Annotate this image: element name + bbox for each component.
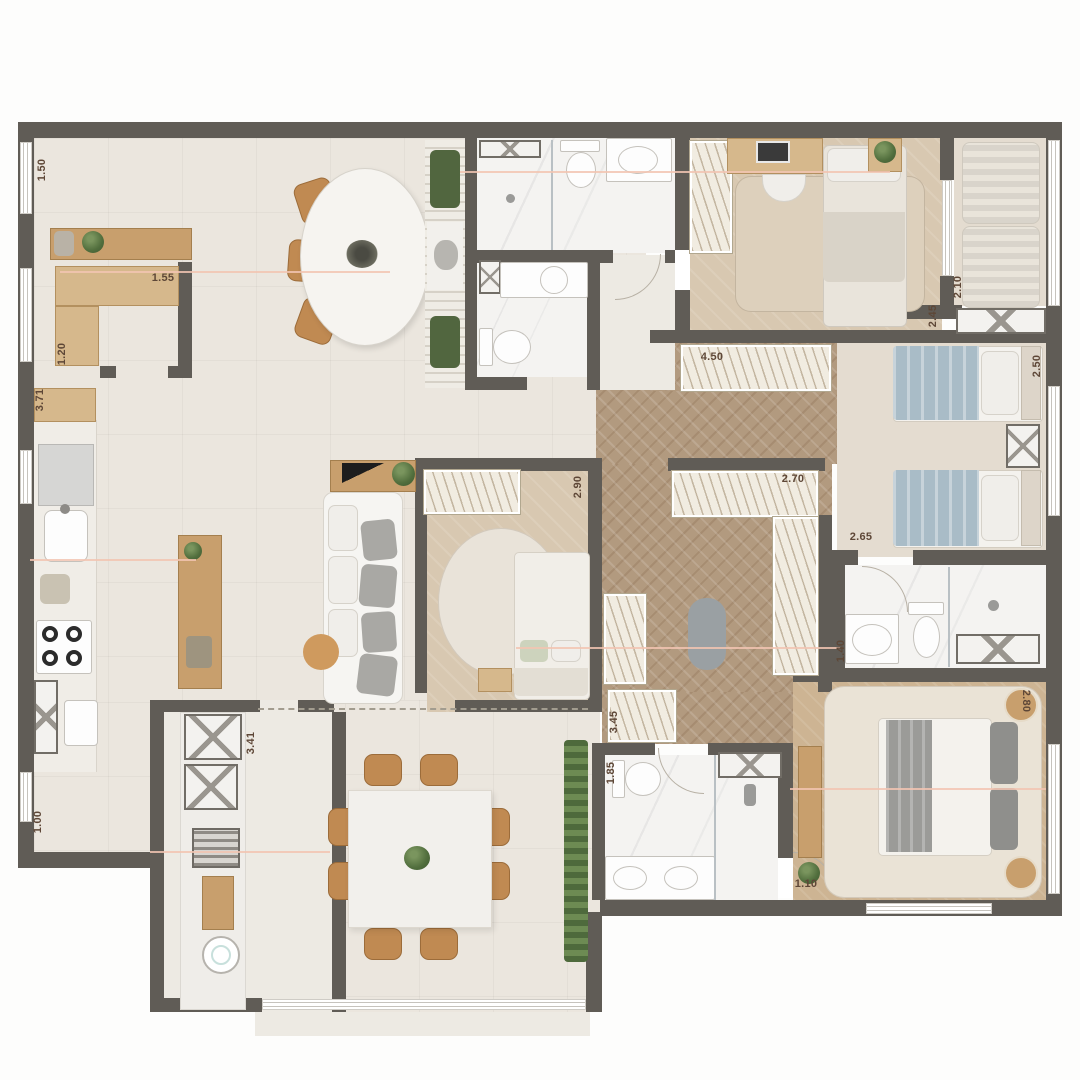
wardrobe: [604, 594, 646, 684]
sofa-pillow: [360, 518, 398, 561]
dimension-label: 1.20: [56, 343, 68, 366]
terrace-step: [255, 1012, 590, 1036]
window: [20, 268, 32, 362]
bed-headboard-pillows: [990, 722, 1018, 784]
laptop: [756, 141, 790, 163]
wall-office-right: [178, 262, 192, 366]
sofa-cushion: [328, 556, 358, 604]
terrace-chair: [420, 754, 458, 786]
wall-bedroom2-bath: [832, 550, 858, 565]
burner: [66, 626, 82, 642]
wall-bedroom3-right: [588, 458, 602, 712]
burner: [66, 650, 82, 666]
window-balcony-door: [942, 180, 952, 276]
bed-footboard: [514, 668, 588, 696]
bed-pillow: [981, 351, 1019, 415]
toilet-bowl: [566, 152, 596, 188]
toilet: [479, 328, 493, 366]
dimension-label: 1.00: [32, 811, 44, 834]
wall-powder-bottom: [465, 377, 527, 390]
dimension-line: [516, 647, 840, 649]
drainboard: [38, 444, 94, 506]
dimension-line: [460, 171, 890, 173]
dimension-label: 2.80: [1020, 690, 1032, 713]
tall-wardrobe: [798, 746, 822, 858]
toilet-bowl: [913, 616, 940, 658]
shower-fixture: [744, 784, 756, 806]
window: [866, 903, 992, 914]
burner: [42, 650, 58, 666]
shower-floor: [956, 634, 1040, 664]
bed-pillow: [981, 475, 1019, 541]
wardrobe: [424, 470, 520, 514]
tv: [342, 463, 384, 483]
dimension-label: 1.10: [795, 878, 818, 890]
shower-glass: [551, 140, 553, 250]
sink: [540, 266, 568, 294]
lounge-chair: [962, 226, 1040, 308]
dishwasher: [64, 700, 98, 746]
bed-duvet: [823, 212, 905, 282]
wall-service-top: [164, 700, 260, 712]
dimension-line: [30, 559, 196, 561]
laundry-basin-ring: [211, 945, 231, 965]
dimension-label: 2.50: [1031, 355, 1043, 378]
toilet-bowl: [493, 330, 531, 364]
terrace-chair: [420, 928, 458, 960]
bed-blanket-blue: [893, 346, 979, 420]
dimension-line: [60, 271, 390, 273]
shaft: [479, 260, 501, 294]
wall-master-top: [793, 668, 1046, 682]
door-master-bedroom: [778, 858, 793, 898]
terrace-chair: [364, 928, 402, 960]
wall-terrace-corner: [586, 912, 602, 1012]
grill-tools: [202, 876, 234, 930]
sofa-pillow: [361, 611, 398, 653]
island-tray: [186, 636, 212, 668]
planter-vertical-garden: [564, 740, 588, 962]
wall-bedroom1-left-a: [675, 138, 690, 250]
wardrobe: [690, 141, 732, 253]
table-plant: [404, 846, 430, 870]
dimension-label: 3.71: [34, 389, 46, 412]
faucet: [60, 504, 70, 514]
sofa-cushion: [328, 505, 358, 551]
plant: [82, 231, 104, 253]
kitchen-sink: [44, 510, 88, 562]
dimension-label: 2.90: [572, 476, 584, 499]
floor-plan: 1.501.551.203.712.452.102.504.502.902.70…: [0, 0, 1080, 1080]
window: [1048, 140, 1060, 306]
window: [20, 142, 32, 214]
sink: [618, 146, 658, 174]
bed-headboard: [1021, 470, 1041, 546]
plant: [874, 141, 896, 163]
storage-cabinet: [184, 714, 242, 760]
plant: [184, 542, 202, 560]
bed-runner-gray: [886, 720, 932, 852]
sink: [852, 624, 892, 656]
dimension-label: 4.50: [701, 351, 724, 363]
bench: [478, 668, 512, 692]
floor-hallway: [596, 386, 838, 464]
ottoman: [688, 598, 726, 670]
nightstand-round: [1004, 856, 1038, 890]
window: [20, 450, 32, 504]
basket: [54, 231, 74, 256]
shower-glass: [714, 755, 716, 900]
landing-plant: [434, 240, 458, 270]
window: [20, 772, 32, 822]
window: [1048, 744, 1060, 894]
bed-pillow-sage: [520, 640, 548, 662]
nightstand: [1006, 424, 1040, 468]
bed-pillow: [551, 640, 581, 662]
door-bedroom-1: [675, 250, 690, 290]
plant: [392, 462, 415, 486]
sofa-pillow: [356, 653, 399, 697]
burner: [42, 626, 58, 642]
sink: [613, 866, 647, 890]
storage-cabinet: [184, 764, 238, 810]
wall-masterbath-left: [592, 755, 605, 900]
pouf: [303, 634, 339, 670]
wall-walkin-top: [668, 458, 825, 471]
screen-cushion: [430, 316, 460, 368]
grill: [192, 828, 240, 868]
wall-masterbath-top: [592, 743, 655, 755]
wall-powder-right: [587, 255, 600, 390]
bed-blanket-blue: [893, 470, 979, 546]
toilet: [560, 140, 600, 152]
wall-powder-left: [465, 255, 477, 390]
window-terrace: [262, 999, 586, 1010]
dimension-label: 2.65: [850, 531, 873, 543]
lounge-chair: [962, 142, 1040, 224]
dimension-label: 3.45: [608, 711, 620, 734]
dimension-label: 1.50: [36, 159, 48, 182]
refrigerator: [34, 680, 58, 754]
wall-bath1-left: [465, 135, 477, 255]
ac-unit: [956, 308, 1046, 334]
wall-office-bottom: [168, 366, 192, 378]
dimension-label: 2.10: [952, 276, 964, 299]
shower-niche: [479, 140, 541, 158]
screen-cushion: [430, 150, 460, 208]
dimension-label: 1.55: [152, 272, 175, 284]
dimension-label: 1.85: [605, 762, 617, 785]
bed-headboard-pillows: [990, 788, 1018, 850]
terrace-chair: [364, 754, 402, 786]
shower-niche: [718, 752, 782, 778]
sink: [664, 866, 698, 890]
shower-drain: [506, 194, 515, 203]
toilet-bowl: [625, 762, 661, 796]
dimension-line: [790, 788, 1046, 790]
table-centerpiece: [346, 240, 378, 268]
wall-walkin-right: [818, 515, 832, 692]
wardrobe: [773, 517, 818, 675]
window: [1048, 386, 1060, 516]
wall-service-left: [150, 700, 164, 1012]
wall-bedroom3-bottom: [455, 700, 602, 712]
dimension-label: 2.45: [927, 305, 939, 328]
wall-kitchen-bottom: [18, 852, 164, 868]
shower-head: [988, 600, 999, 611]
toilet: [908, 602, 944, 615]
dimension-label: 2.70: [782, 473, 805, 485]
opening-dashed-line: [258, 708, 588, 710]
wall-office-bottom2: [100, 366, 116, 378]
wall-top: [18, 122, 1062, 138]
dimension-label: 3.41: [245, 732, 257, 755]
sofa-pillow: [358, 564, 398, 609]
countertop-items: [40, 574, 70, 604]
wall-balcony-divider: [940, 138, 954, 180]
dimension-line: [150, 851, 330, 853]
shower-glass: [948, 567, 950, 667]
wall-bath1-bottom2: [665, 250, 675, 263]
dimension-label: 1.40: [835, 640, 847, 663]
wall-bottom-right: [600, 900, 1062, 916]
wall-bedroom2-bath2: [913, 550, 1046, 565]
